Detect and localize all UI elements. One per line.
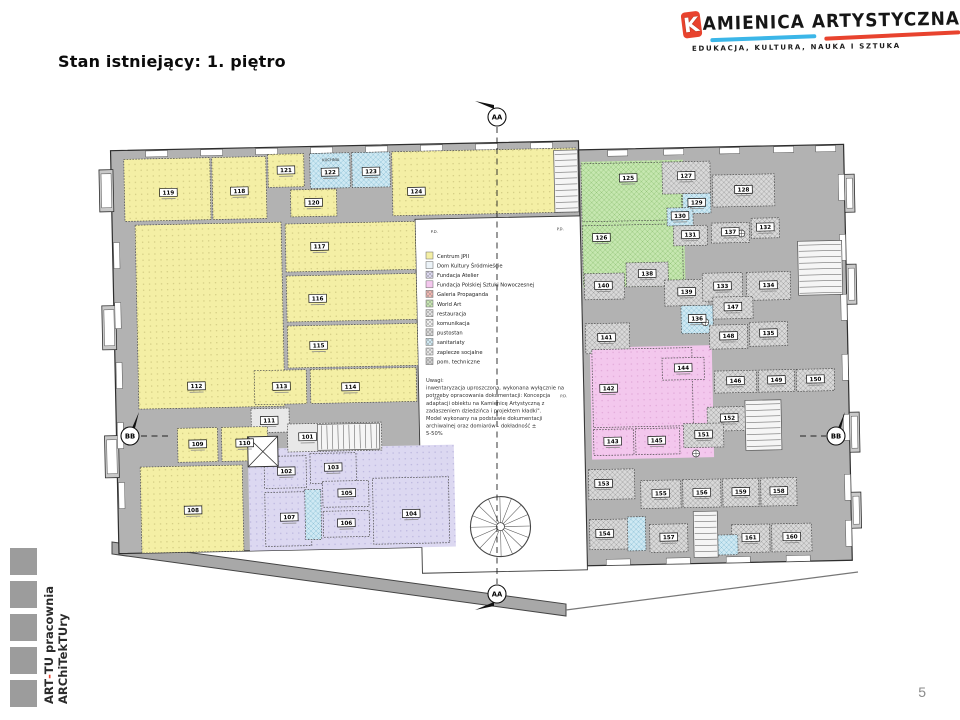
slide: 1191181211201221231241171161151121131141… (0, 0, 960, 720)
room-label-149: 149 (771, 378, 783, 384)
window (664, 149, 684, 155)
room-label-109: 109 (192, 442, 204, 448)
notes-line: archiwalnej oraz domiarów - dokładność ± (426, 423, 536, 430)
plan-annotation: P.D. (560, 393, 567, 398)
room-115 (287, 323, 418, 368)
room-label-157: 157 (663, 535, 675, 541)
room-label-151: 151 (698, 432, 710, 438)
room-label-125: 125 (622, 176, 634, 182)
room-label-121: 121 (280, 168, 292, 174)
room-label-131: 131 (685, 233, 697, 239)
room-label-110: 110 (239, 441, 251, 447)
room-label-101: 101 (302, 435, 314, 441)
room-label-134: 134 (763, 283, 775, 289)
legend-label: Dom Kultury Śródmieście (437, 262, 503, 269)
window (116, 362, 123, 388)
studio-square (10, 614, 37, 641)
notes-line: adaptacji obiektu na Kamienicę Artystycz… (426, 401, 545, 407)
room-124 (392, 148, 577, 216)
section-marker-label: BB (125, 432, 135, 440)
bay-window-glass (848, 268, 855, 300)
notes-line: inwentaryzacja uproszczona, wykonana wył… (426, 386, 564, 392)
window (786, 555, 810, 562)
room-label-105: 105 (341, 491, 353, 497)
room-label-148: 148 (723, 334, 735, 340)
legend-swatch-hatch (426, 319, 433, 326)
legend-label: Fundacja Polskiej Sztuki Nowoczesnej (437, 283, 534, 289)
window (774, 146, 794, 152)
page-title: Stan istniejący: 1. piętro (58, 52, 286, 71)
window (842, 354, 849, 380)
bay-window-glass (104, 310, 115, 346)
legend-swatch (426, 252, 433, 259)
room-label-128: 128 (738, 187, 750, 193)
window (720, 148, 740, 154)
window (841, 294, 848, 320)
legend-swatch-hatch (426, 310, 433, 317)
room-label-129: 129 (691, 200, 703, 206)
room-label-108: 108 (187, 508, 199, 514)
room-label-138: 138 (641, 271, 653, 277)
staircase (745, 400, 782, 451)
room-label-127: 127 (680, 174, 692, 180)
window (838, 174, 845, 200)
brand-k-icon: K (680, 11, 702, 39)
window (201, 149, 223, 155)
room-label-155: 155 (655, 491, 667, 497)
room-label-124: 124 (411, 189, 423, 195)
legend-label: sanitariaty (437, 340, 465, 346)
legend-label: Fundacja Atelier (437, 273, 480, 279)
room-label-158: 158 (773, 489, 785, 495)
studio-square (10, 647, 37, 674)
room-label-118: 118 (234, 189, 246, 195)
room-label-113: 113 (276, 384, 288, 390)
brand-underline-blue (710, 34, 816, 42)
window (146, 150, 168, 156)
room-label-103: 103 (327, 465, 339, 471)
window (608, 150, 628, 156)
room-label-146: 146 (730, 379, 742, 385)
window (256, 148, 278, 154)
studio-name-sep: - (42, 674, 56, 679)
legend-swatch-hatch (426, 271, 433, 278)
room-label-154: 154 (599, 531, 611, 537)
spiral-stair-core (496, 523, 504, 531)
room-label-142: 142 (603, 386, 615, 392)
room-label-111: 111 (263, 418, 275, 424)
studio-name-pre: ART (42, 679, 56, 704)
room-label-132: 132 (759, 225, 771, 231)
legend-swatch (426, 281, 433, 288)
bay-window-glass (101, 174, 112, 208)
legend-swatch (426, 262, 433, 269)
window (113, 243, 120, 269)
room-label-116: 116 (312, 296, 324, 302)
room-label-145: 145 (651, 438, 663, 444)
room-label-136: 136 (691, 316, 703, 322)
building-layer: 1191181211201221231241171161151121131141… (99, 135, 863, 580)
room-label-123: 123 (365, 169, 377, 175)
room-label-106: 106 (340, 521, 352, 527)
studio-name: ART-TU pracownia ARChiTekTUry (42, 524, 70, 704)
room-label-160: 160 (786, 534, 798, 540)
room-label-137: 137 (724, 230, 736, 236)
page-number: 5 (918, 684, 926, 700)
brand-wordmark: K AMIENICA ARTYSTYCZNA (682, 3, 960, 41)
legend-swatch-hatch (426, 329, 433, 336)
studio-squares (10, 542, 37, 707)
legend-label: restauracja (437, 311, 466, 317)
legend-label: Centrum JPII (437, 254, 469, 260)
studio-square (10, 581, 37, 608)
room-116 (286, 273, 417, 322)
room-label-122: 122 (324, 170, 336, 176)
room-label-135: 135 (763, 331, 775, 337)
section-flag-icon (475, 101, 494, 109)
studio-square (10, 680, 37, 707)
room-label-161: 161 (745, 535, 757, 541)
room-sanitary (305, 489, 322, 539)
notes-line: 5-50% (426, 431, 443, 437)
staircase (554, 150, 579, 212)
room-label-144: 144 (677, 366, 689, 372)
legend-label: pustostan (437, 331, 463, 337)
room-label-107: 107 (283, 515, 295, 521)
window (816, 146, 836, 152)
room-label-120: 120 (308, 200, 320, 206)
plan-annotation: KUCHNIA (322, 157, 340, 162)
room-label-139: 139 (681, 290, 693, 296)
room-label-130: 130 (674, 214, 686, 220)
plan-annotation: P.D. (557, 226, 564, 231)
room-117 (285, 221, 416, 272)
notes-line: Uwagi: (426, 378, 444, 384)
window (606, 559, 630, 566)
legend-swatch-hatch (426, 300, 433, 307)
window (366, 146, 388, 152)
room-label-156: 156 (696, 490, 708, 496)
room-label-119: 119 (163, 190, 175, 196)
room-label-102: 102 (280, 469, 292, 475)
legend-label: komunikacja (437, 321, 470, 327)
room-sanitary (718, 535, 738, 555)
notes-line: potrzeby opracowania dokumentacji: Konce… (426, 393, 550, 399)
room-label-159: 159 (735, 490, 747, 496)
window (420, 145, 442, 151)
section-marker-label: AA (492, 113, 503, 121)
legend-label: pom. techniczne (437, 359, 480, 365)
room-sanitary (627, 517, 646, 551)
room-label-152: 152 (723, 416, 735, 422)
window (311, 147, 333, 153)
notes-line: Model wykonany na podstawie dokumentacji (426, 416, 542, 422)
legend-swatch-hatch (426, 290, 433, 297)
room-label-115: 115 (313, 343, 325, 349)
room-label-112: 112 (191, 384, 203, 390)
legend-swatch-hatch (426, 338, 433, 345)
window (845, 520, 852, 546)
room-label-153: 153 (598, 481, 610, 487)
window (666, 558, 690, 565)
notes-line: zadaszeniem dziedzińca i projektem kładk… (426, 407, 542, 414)
room-label-143: 143 (607, 439, 619, 445)
room-label-133: 133 (717, 284, 729, 290)
legend-swatch-hatch (426, 348, 433, 355)
section-marker-label: AA (492, 590, 503, 598)
room-label-150: 150 (810, 377, 822, 383)
window (844, 474, 851, 500)
room-label-104: 104 (405, 511, 417, 517)
brand-word2: ARTYSTYCZNA (812, 8, 960, 33)
staircase (693, 511, 718, 557)
window (118, 482, 125, 508)
window (726, 556, 750, 563)
room-label-147: 147 (727, 305, 739, 311)
room-label-117: 117 (314, 244, 326, 250)
room-label-140: 140 (598, 283, 610, 289)
bay-window-glass (107, 440, 118, 474)
section-marker-label: BB (831, 432, 841, 440)
bay-window-glass (853, 496, 860, 524)
window (475, 144, 497, 150)
plan-annotation: P.D. (431, 229, 438, 234)
sidewalk-line (566, 572, 858, 610)
room-label-141: 141 (601, 335, 613, 341)
legend-label: zaplecze socjalne (437, 350, 483, 356)
room-114 (310, 367, 417, 403)
studio-square (10, 548, 37, 575)
window (530, 142, 552, 148)
legend-label: Galeria Propaganda (437, 292, 488, 298)
building-group: 1191181211201221231241171161151121131141… (99, 135, 863, 580)
brand-logo: K AMIENICA ARTYSTYCZNA EDUKACJA, KULTURA… (682, 6, 960, 51)
legend-swatch-hatch (426, 358, 433, 365)
floor-plan: 1191181211201221231241171161151121131141… (0, 0, 960, 720)
brand-word1: AMIENICA (702, 12, 805, 36)
room-label-126: 126 (596, 235, 608, 241)
legend-label: World Art (437, 302, 461, 308)
room-label-114: 114 (345, 385, 357, 391)
bay-window-glass (851, 416, 858, 448)
window (115, 303, 122, 329)
bay-window-glass (846, 178, 853, 208)
